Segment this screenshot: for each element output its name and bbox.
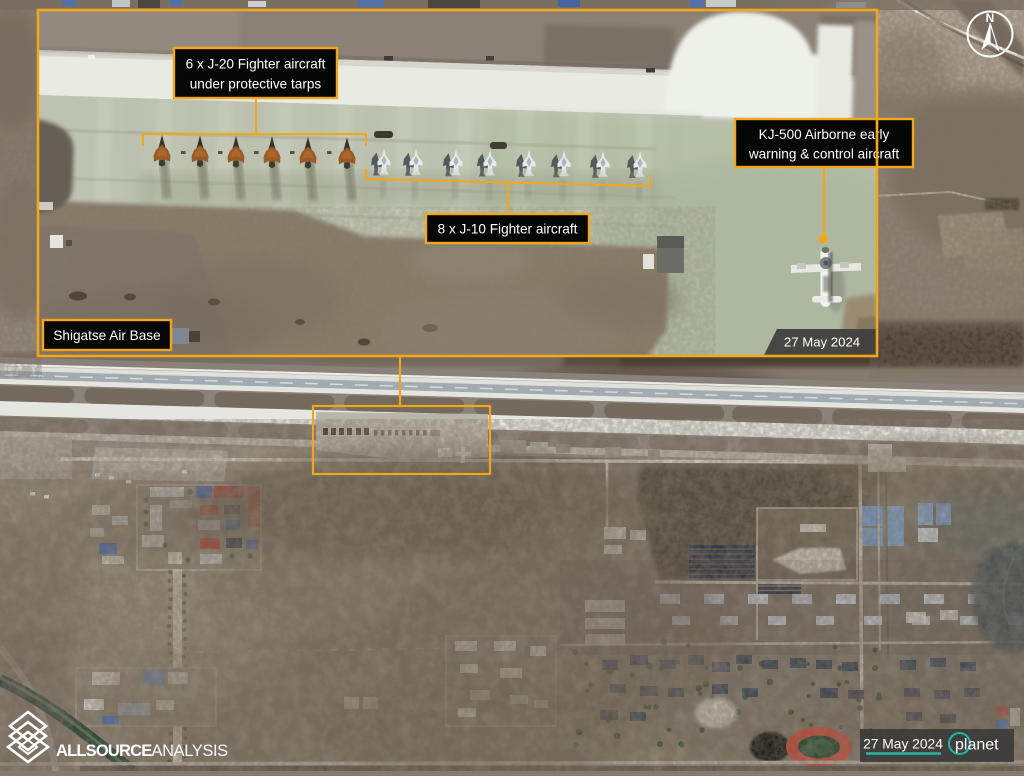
svg-text:27 May 2024: 27 May 2024 [784,335,860,350]
svg-text:6 x J-20 Fighter aircraft: 6 x J-20 Fighter aircraft [186,57,326,72]
svg-text:planet: planet [955,737,999,754]
svg-text:8 x J-10 Fighter aircraft: 8 x J-10 Fighter aircraft [438,222,578,237]
svg-text:Shigatse Air Base: Shigatse Air Base [53,328,160,343]
svg-text:ALLSOURCEANALYSIS: ALLSOURCEANALYSIS [56,742,228,760]
svg-text:KJ-500 Airborne early: KJ-500 Airborne early [759,127,890,142]
svg-text:under protective tarps: under protective tarps [190,77,322,92]
svg-text:27 May 2024: 27 May 2024 [863,737,943,752]
svg-text:N: N [986,11,995,25]
